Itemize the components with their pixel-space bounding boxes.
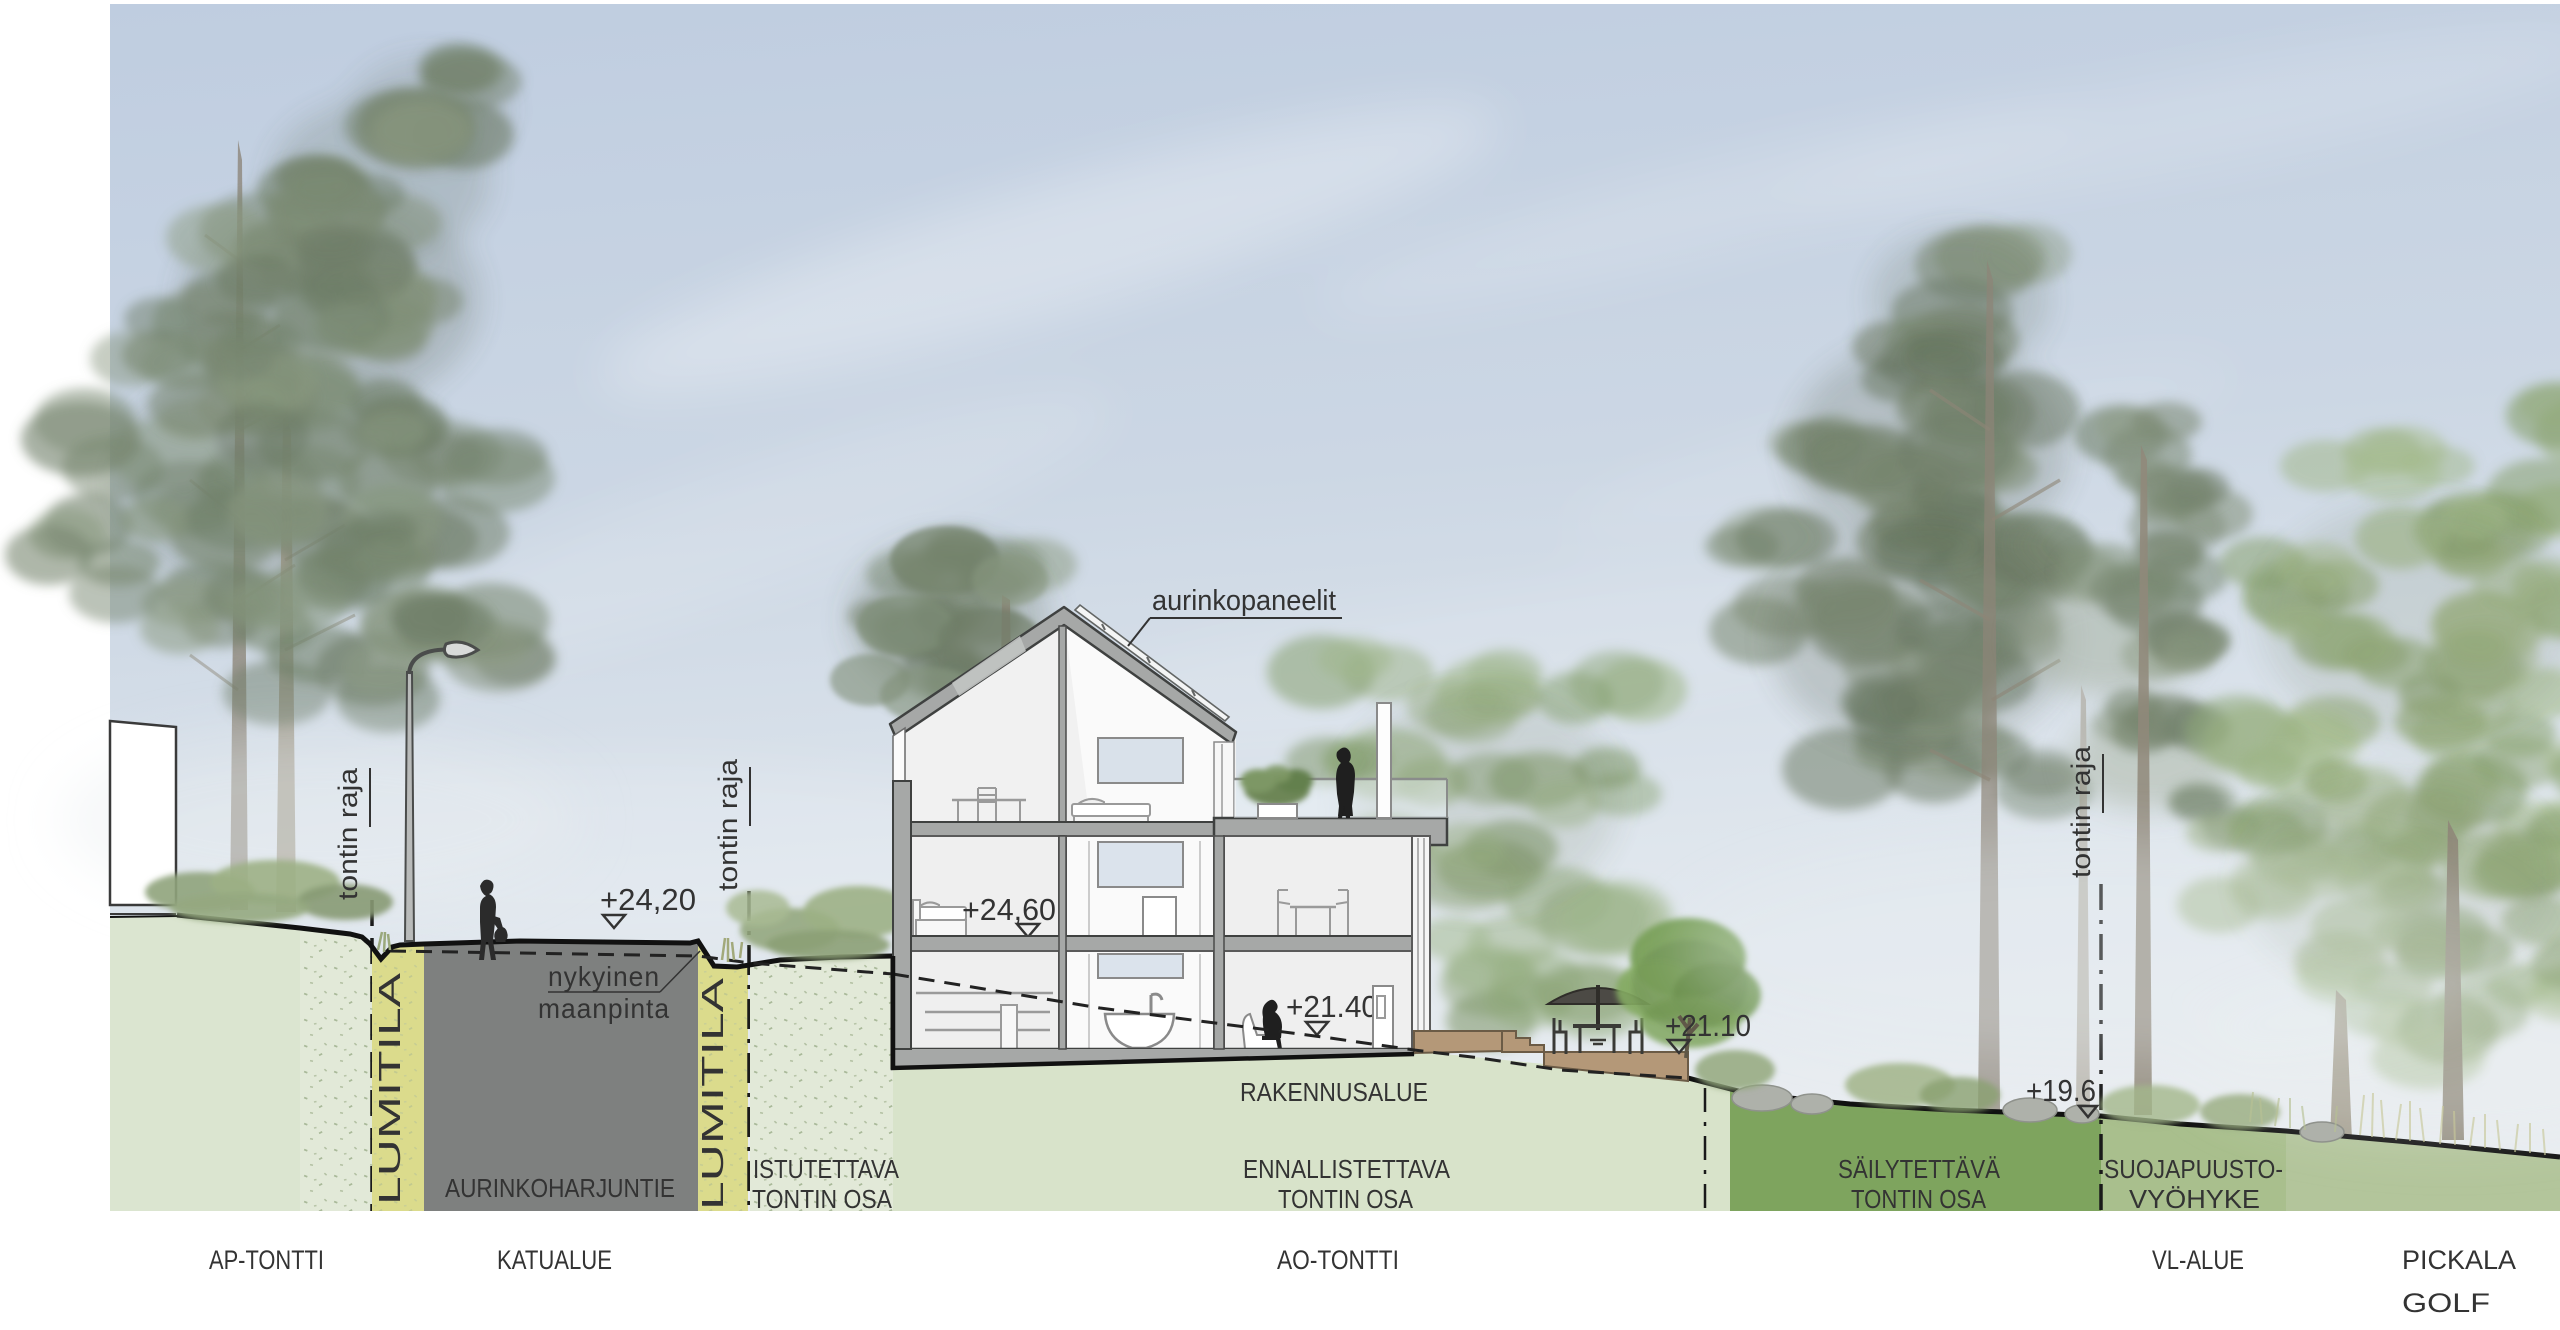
svg-text:ENNALLISTETTAVA: ENNALLISTETTAVA [1243, 1154, 1451, 1184]
svg-text:+21.40: +21.40 [1286, 989, 1378, 1024]
svg-text:AURINKOHARJUNTIE: AURINKOHARJUNTIE [445, 1173, 675, 1203]
svg-text:tontin raja: tontin raja [333, 767, 363, 900]
svg-text:AP-TONTTI: AP-TONTTI [209, 1245, 324, 1275]
svg-text:nykyinen: nykyinen [548, 961, 660, 992]
svg-text:+21.10: +21.10 [1665, 1008, 1751, 1043]
svg-text:VL-ALUE: VL-ALUE [2152, 1245, 2244, 1275]
svg-text:maanpinta: maanpinta [538, 993, 670, 1024]
svg-text:aurinkopaneelit: aurinkopaneelit [1152, 585, 1336, 617]
svg-text:SÄILYTETTÄVÄ: SÄILYTETTÄVÄ [1838, 1154, 2001, 1184]
svg-text:PICKALA: PICKALA [2402, 1245, 2516, 1275]
svg-text:LUMITILA: LUMITILA [695, 977, 730, 1210]
svg-text:RAKENNUSALUE: RAKENNUSALUE [1240, 1077, 1428, 1107]
svg-text:VYÖHYKE: VYÖHYKE [2129, 1184, 2260, 1214]
svg-text:tontin raja: tontin raja [2066, 745, 2096, 878]
svg-text:TONTIN OSA: TONTIN OSA [1851, 1184, 1987, 1214]
svg-text:TONTIN OSA: TONTIN OSA [752, 1184, 893, 1214]
svg-text:ISTUTETTAVA: ISTUTETTAVA [753, 1154, 900, 1184]
svg-text:AO-TONTTI: AO-TONTTI [1277, 1245, 1399, 1275]
svg-text:+19.6: +19.6 [2026, 1073, 2096, 1108]
svg-text:+24,20: +24,20 [600, 882, 696, 917]
svg-text:LUMITILA: LUMITILA [372, 972, 407, 1205]
svg-text:GOLF: GOLF [2402, 1288, 2490, 1318]
svg-text:tontin raja: tontin raja [713, 758, 743, 891]
svg-text:+24,60: +24,60 [962, 892, 1056, 927]
svg-text:SUOJAPUUSTO-: SUOJAPUUSTO- [2104, 1154, 2283, 1184]
svg-text:TONTIN OSA: TONTIN OSA [1278, 1184, 1414, 1214]
svg-text:KATUALUE: KATUALUE [497, 1245, 612, 1275]
